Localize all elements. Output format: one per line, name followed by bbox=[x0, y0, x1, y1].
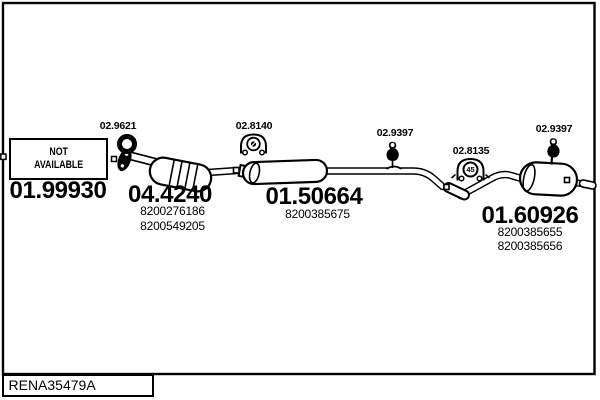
clamp-diameter-label: 45 bbox=[465, 166, 477, 174]
part-label-clamp: 02.8135 bbox=[450, 146, 492, 157]
part-number-catalyst-1: 8200276186 bbox=[133, 205, 213, 217]
mid-muffler bbox=[243, 160, 328, 185]
hanger-rear-stem bbox=[552, 157, 553, 165]
hanger-icon-front bbox=[386, 142, 398, 161]
connector-square-sleeve bbox=[444, 185, 449, 190]
reference-code-box: RENA35479A bbox=[2, 374, 154, 397]
hanger-icon-rear bbox=[547, 138, 559, 157]
part-label-catalyst: 04.4240 bbox=[125, 183, 215, 207]
part-label-mid-mount: 02.8140 bbox=[233, 121, 275, 132]
part-label-front-section: 01.99930 bbox=[7, 179, 109, 203]
part-label-hanger-front: 02.9397 bbox=[374, 128, 416, 139]
connector-square-flange bbox=[112, 157, 117, 162]
connector-square-tailpipe bbox=[565, 178, 570, 183]
part-number-catalyst-2: 8200549205 bbox=[133, 220, 213, 232]
not-available-label: NOT AVAILABLE bbox=[34, 146, 83, 172]
part-number-rear-muffler-1: 8200385655 bbox=[490, 226, 570, 238]
ring-gasket-icon bbox=[120, 137, 135, 152]
reference-code: RENA35479A bbox=[9, 377, 96, 393]
part-label-gasket: 02.9621 bbox=[97, 121, 139, 132]
catalyst-outlet-pipe bbox=[208, 171, 237, 173]
connector-square-mid bbox=[234, 168, 240, 174]
not-available-box: NOT AVAILABLE bbox=[9, 138, 108, 180]
part-number-mid-muffler: 8200385675 bbox=[278, 208, 358, 220]
exhaust-diagram-page: NOT AVAILABLE 02.9621 02.8140 02.9397 02… bbox=[0, 0, 600, 400]
part-label-mid-muffler: 01.50664 bbox=[262, 185, 366, 209]
part-number-rear-muffler-2: 8200385656 bbox=[490, 240, 570, 252]
part-label-hanger-rear: 02.9397 bbox=[533, 124, 575, 135]
pipe-sleeve-joint bbox=[449, 188, 465, 196]
pipe-bracket bbox=[387, 167, 402, 170]
part-label-rear-muffler: 01.60926 bbox=[478, 204, 582, 228]
connector-square-left bbox=[1, 154, 6, 159]
rubber-mount-icon bbox=[241, 135, 266, 155]
